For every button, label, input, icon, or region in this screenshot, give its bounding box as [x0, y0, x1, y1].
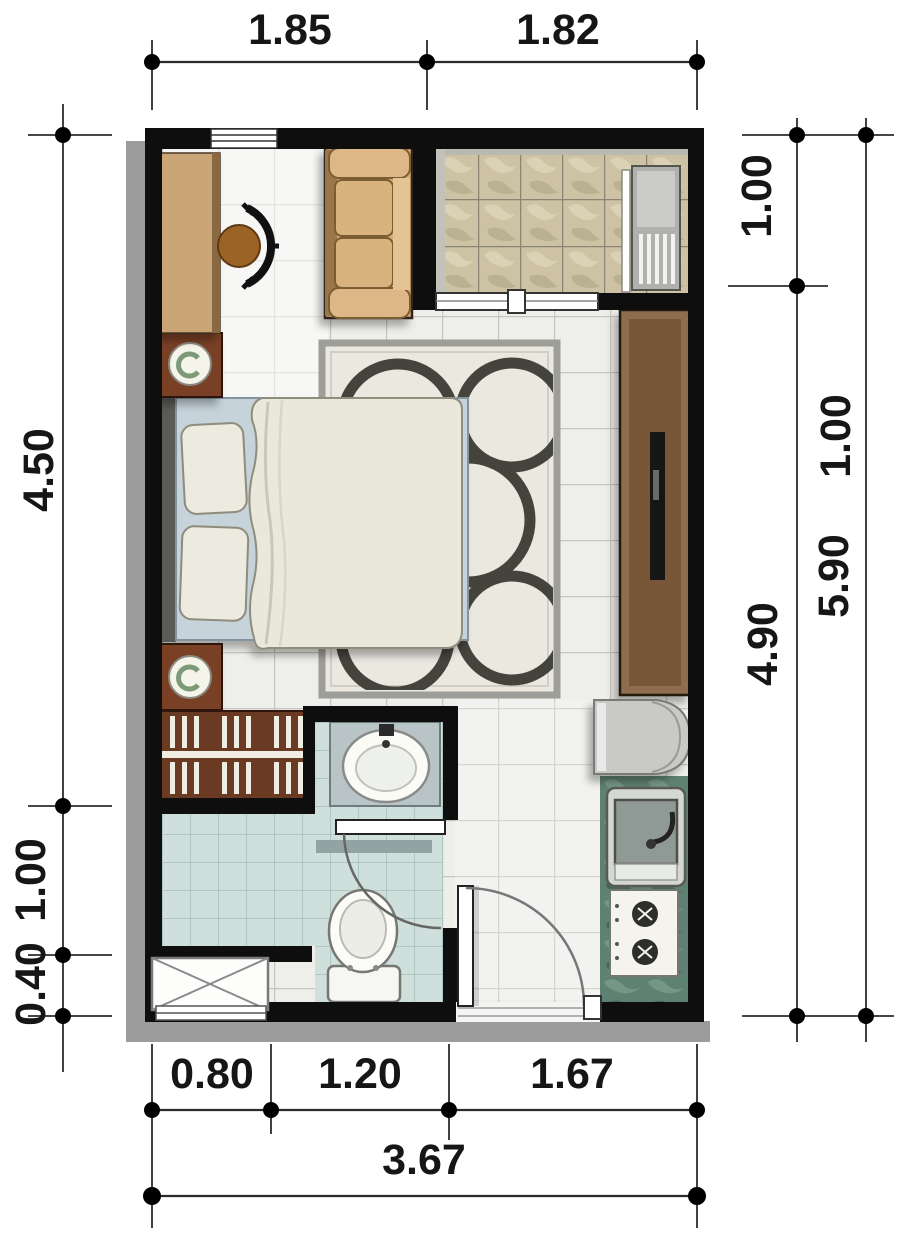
pillow — [179, 526, 248, 621]
tv — [650, 432, 665, 580]
shower-floor — [162, 814, 315, 946]
wall-wardrobe — [145, 798, 315, 814]
sofa — [325, 148, 412, 318]
wall-bathroom-east-upper — [443, 722, 458, 820]
kitchen-sink — [607, 788, 685, 886]
dim-label-bottom-total: 3.67 — [382, 1136, 466, 1184]
balcony-edge — [436, 148, 688, 155]
bathroom-door-shadow — [316, 840, 432, 853]
dim-chain-top — [144, 40, 705, 110]
desk — [158, 153, 220, 333]
dim-label-right-inner-1: 1.00 — [733, 154, 781, 238]
bed — [162, 396, 468, 649]
sofa-front-edge — [393, 178, 410, 290]
fridge — [594, 700, 690, 774]
lamp — [169, 656, 211, 698]
dim-label-top-2: 1.82 — [516, 6, 600, 54]
sofa-armrest — [329, 148, 410, 178]
dim-chain-left — [28, 104, 112, 1072]
dim-label-left-1: 4.50 — [15, 428, 63, 512]
balcony-door-track — [622, 170, 630, 292]
sofa-cushion — [335, 238, 393, 288]
balcony-edge — [436, 148, 445, 293]
sofa-armrest — [329, 288, 410, 318]
tv-glint — [653, 470, 659, 500]
dim-label-top-1: 1.85 — [248, 6, 332, 54]
headboard — [162, 396, 176, 642]
nightstand-bottom — [158, 644, 222, 710]
dim-label-left-3: 0.40 — [7, 942, 55, 1026]
wall-bathroom-north — [303, 706, 458, 722]
nightstand-top — [158, 333, 222, 397]
wall-east — [688, 128, 704, 1022]
wall-bathroom-east-lower — [443, 928, 458, 1004]
toilet — [328, 890, 400, 1002]
sofa-cushion — [335, 180, 393, 236]
wall-bathroom-west — [303, 722, 315, 814]
wardrobe-louver — [158, 711, 314, 799]
dim-label-right-inner-2: 4.90 — [739, 602, 787, 686]
wall-balcony-bottom — [598, 293, 690, 310]
window-north — [211, 129, 277, 148]
stove — [610, 890, 678, 976]
tv-console — [620, 310, 690, 695]
bathroom-sink — [330, 722, 440, 806]
dim-label-right-outer-1: 1.00 — [812, 394, 860, 478]
faucet — [379, 724, 394, 736]
dim-label-bottom-2: 1.20 — [318, 1050, 402, 1098]
dim-label-right-outer-2: 5.90 — [810, 534, 858, 618]
sliding-door-balcony — [436, 290, 598, 313]
ac-unit — [622, 166, 680, 292]
wall-balcony-divider — [413, 128, 436, 310]
floor-plan-drawing: 1.85 1.82 4.50 1.00 0.40 1.00 4.90 1.00 … — [0, 0, 900, 1234]
pillow — [181, 422, 248, 514]
floor-plan-page: 1.85 1.82 4.50 1.00 0.40 1.00 4.90 1.00 … — [0, 0, 900, 1234]
lamp — [169, 343, 211, 385]
wall-west — [145, 128, 162, 1022]
dim-label-bottom-1: 0.80 — [170, 1050, 254, 1098]
planter-box — [152, 958, 268, 1020]
dim-label-left-2: 1.00 — [7, 838, 55, 922]
dim-label-bottom-3: 1.67 — [530, 1050, 614, 1098]
entry-door-leaf — [458, 886, 473, 1006]
entry-door-jamb — [584, 996, 601, 1019]
